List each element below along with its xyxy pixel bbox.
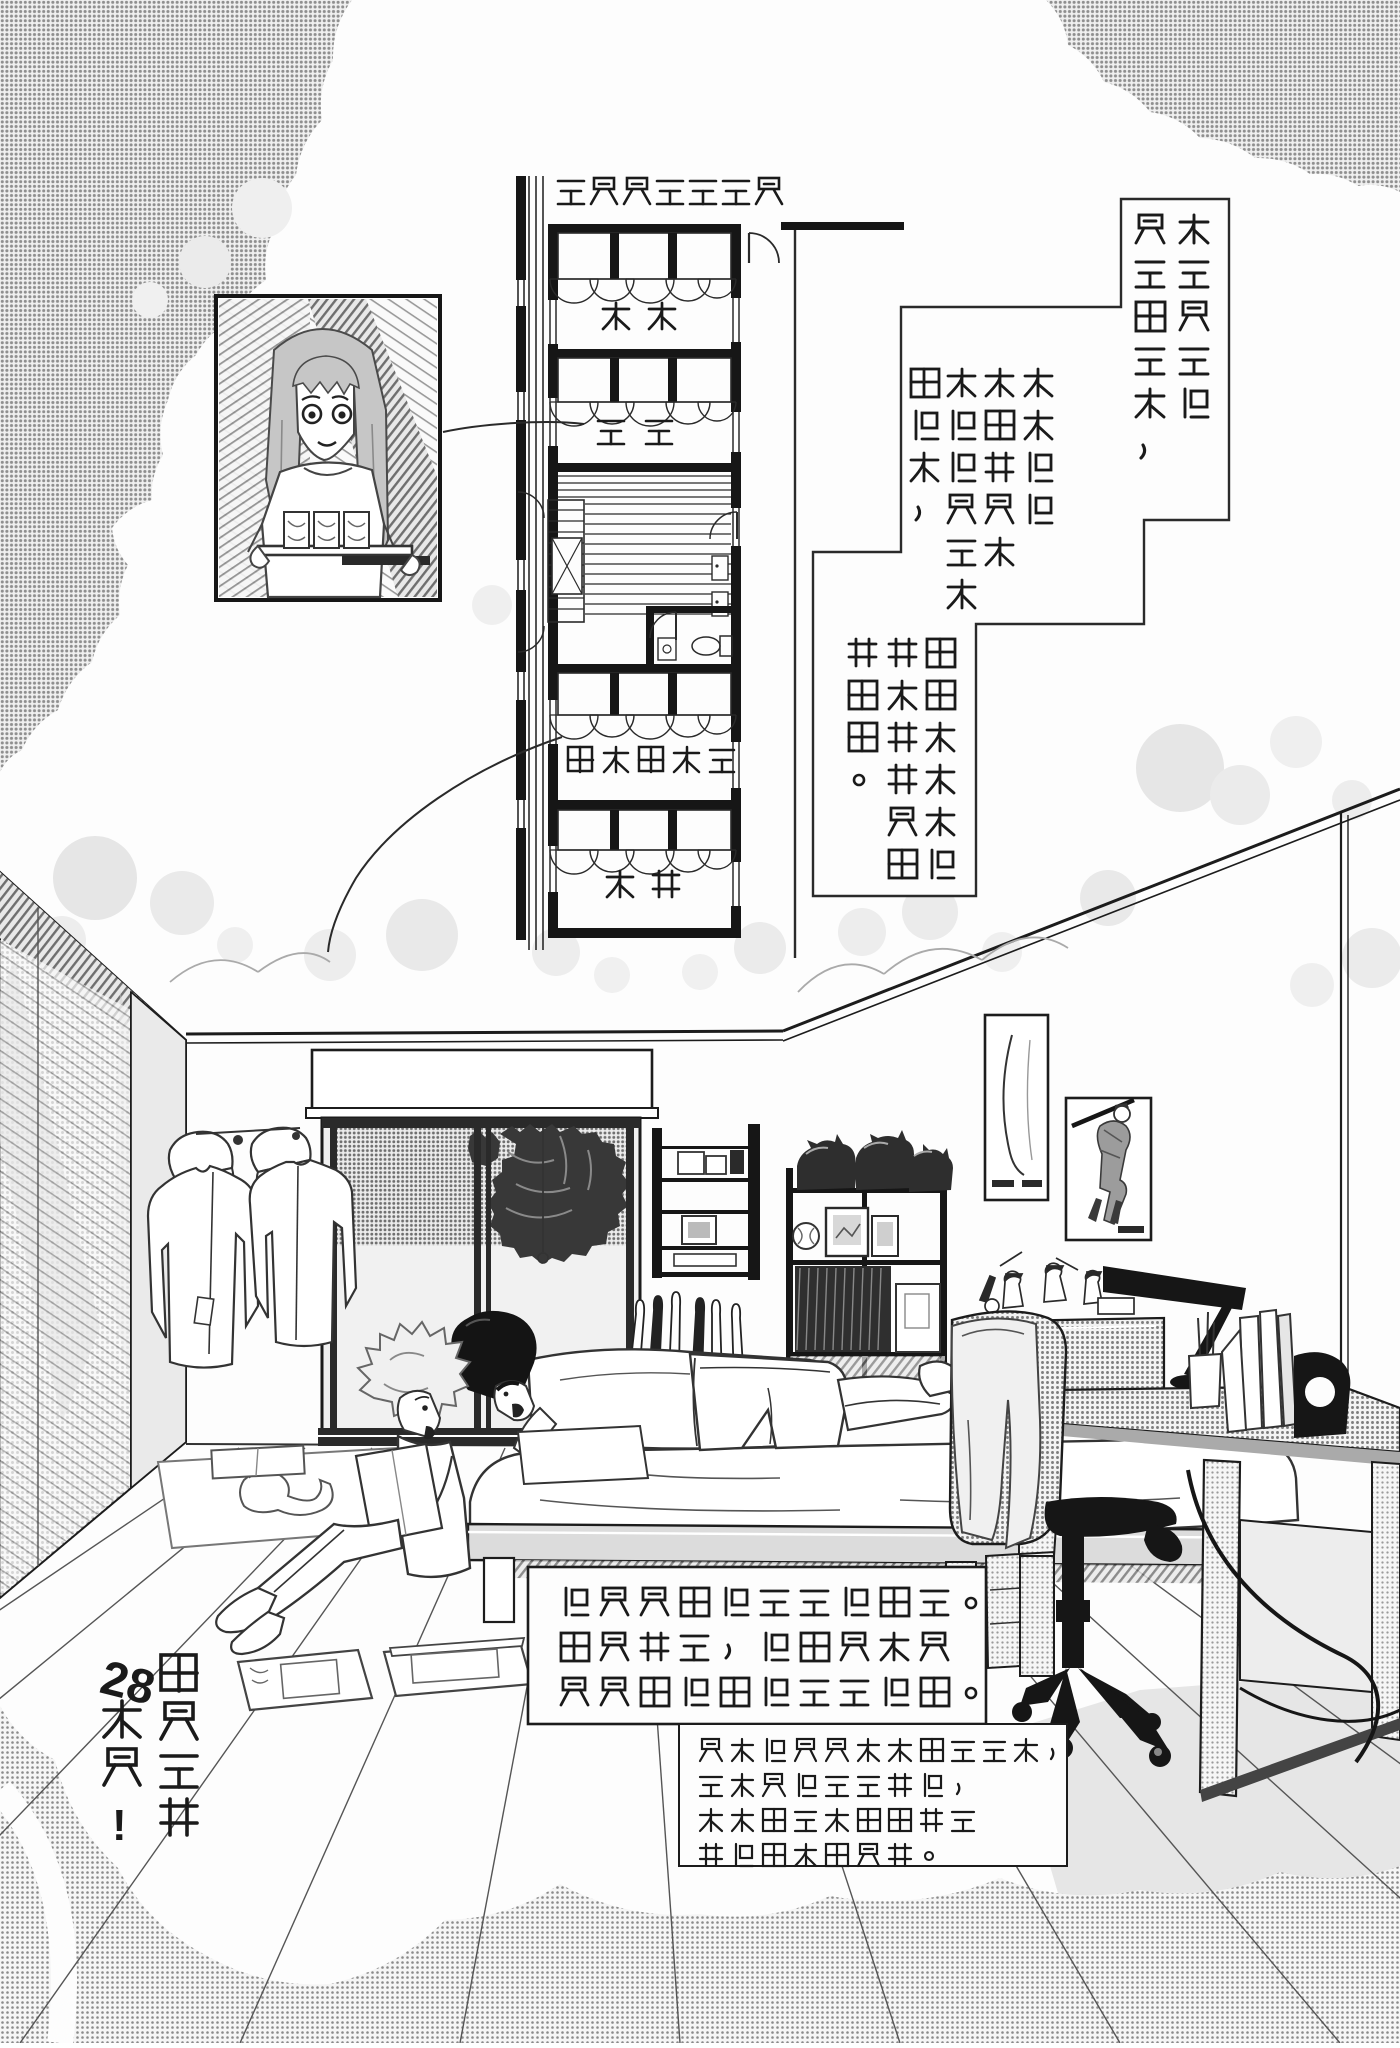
svg-text:!: ! <box>112 1801 127 1850</box>
